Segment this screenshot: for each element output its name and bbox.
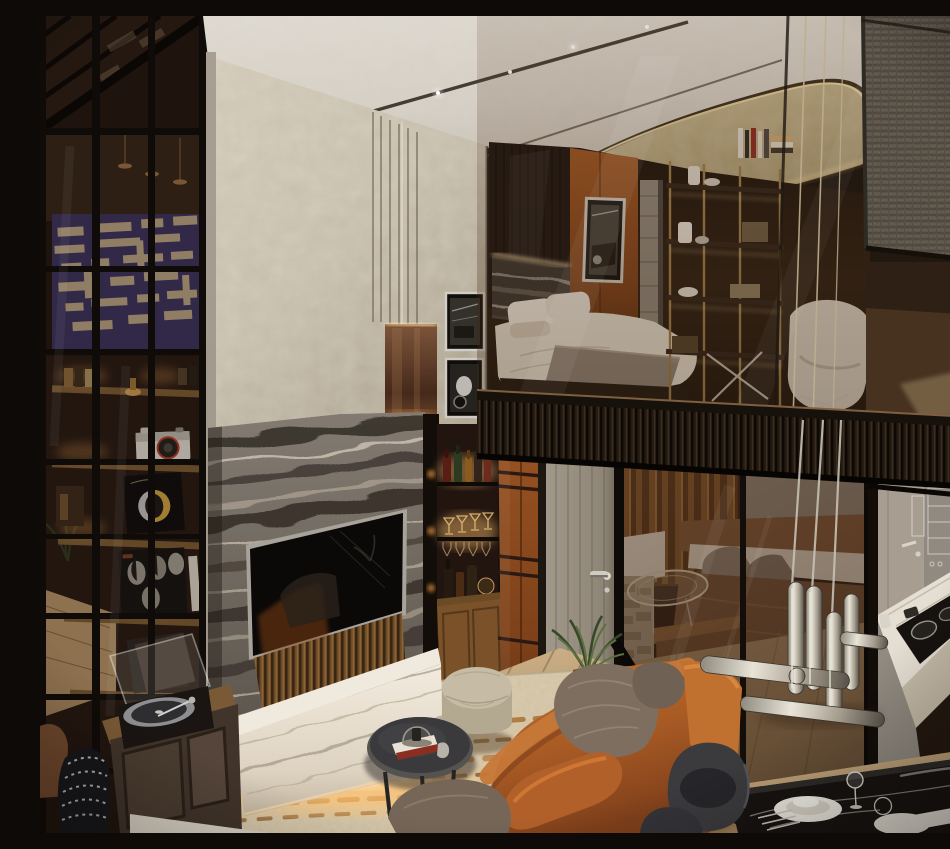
vignette: [40, 16, 950, 833]
interior-render: Photorealistic render of a modern luxury…: [40, 16, 950, 833]
scene-svg: [40, 16, 950, 833]
